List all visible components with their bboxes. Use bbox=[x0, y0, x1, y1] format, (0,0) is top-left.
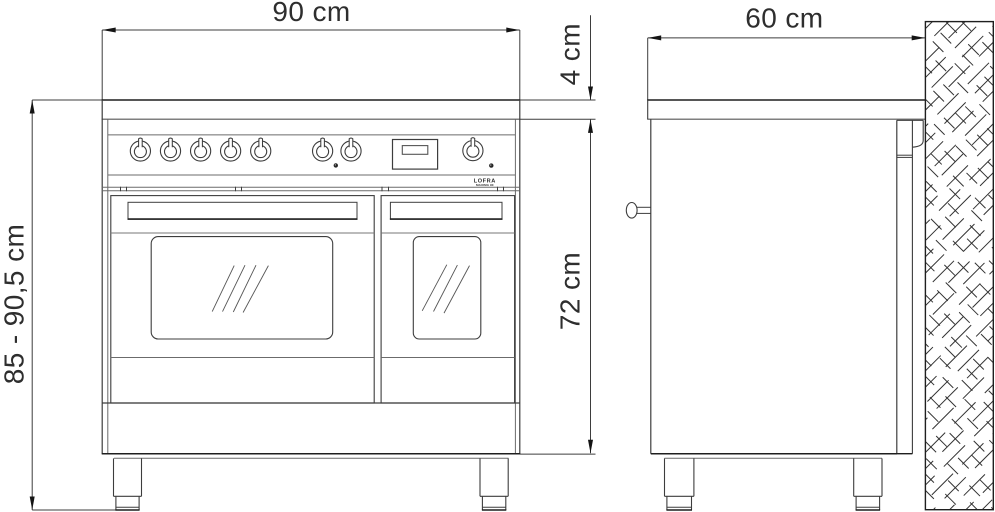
svg-text:60 cm: 60 cm bbox=[745, 3, 823, 34]
svg-text:MAXIMA 90: MAXIMA 90 bbox=[476, 183, 494, 187]
svg-text:72 cm: 72 cm bbox=[555, 252, 586, 330]
svg-text:4 cm: 4 cm bbox=[555, 23, 586, 85]
svg-text:85 - 90,5 cm: 85 - 90,5 cm bbox=[0, 224, 30, 384]
svg-text:90 cm: 90 cm bbox=[272, 0, 350, 27]
